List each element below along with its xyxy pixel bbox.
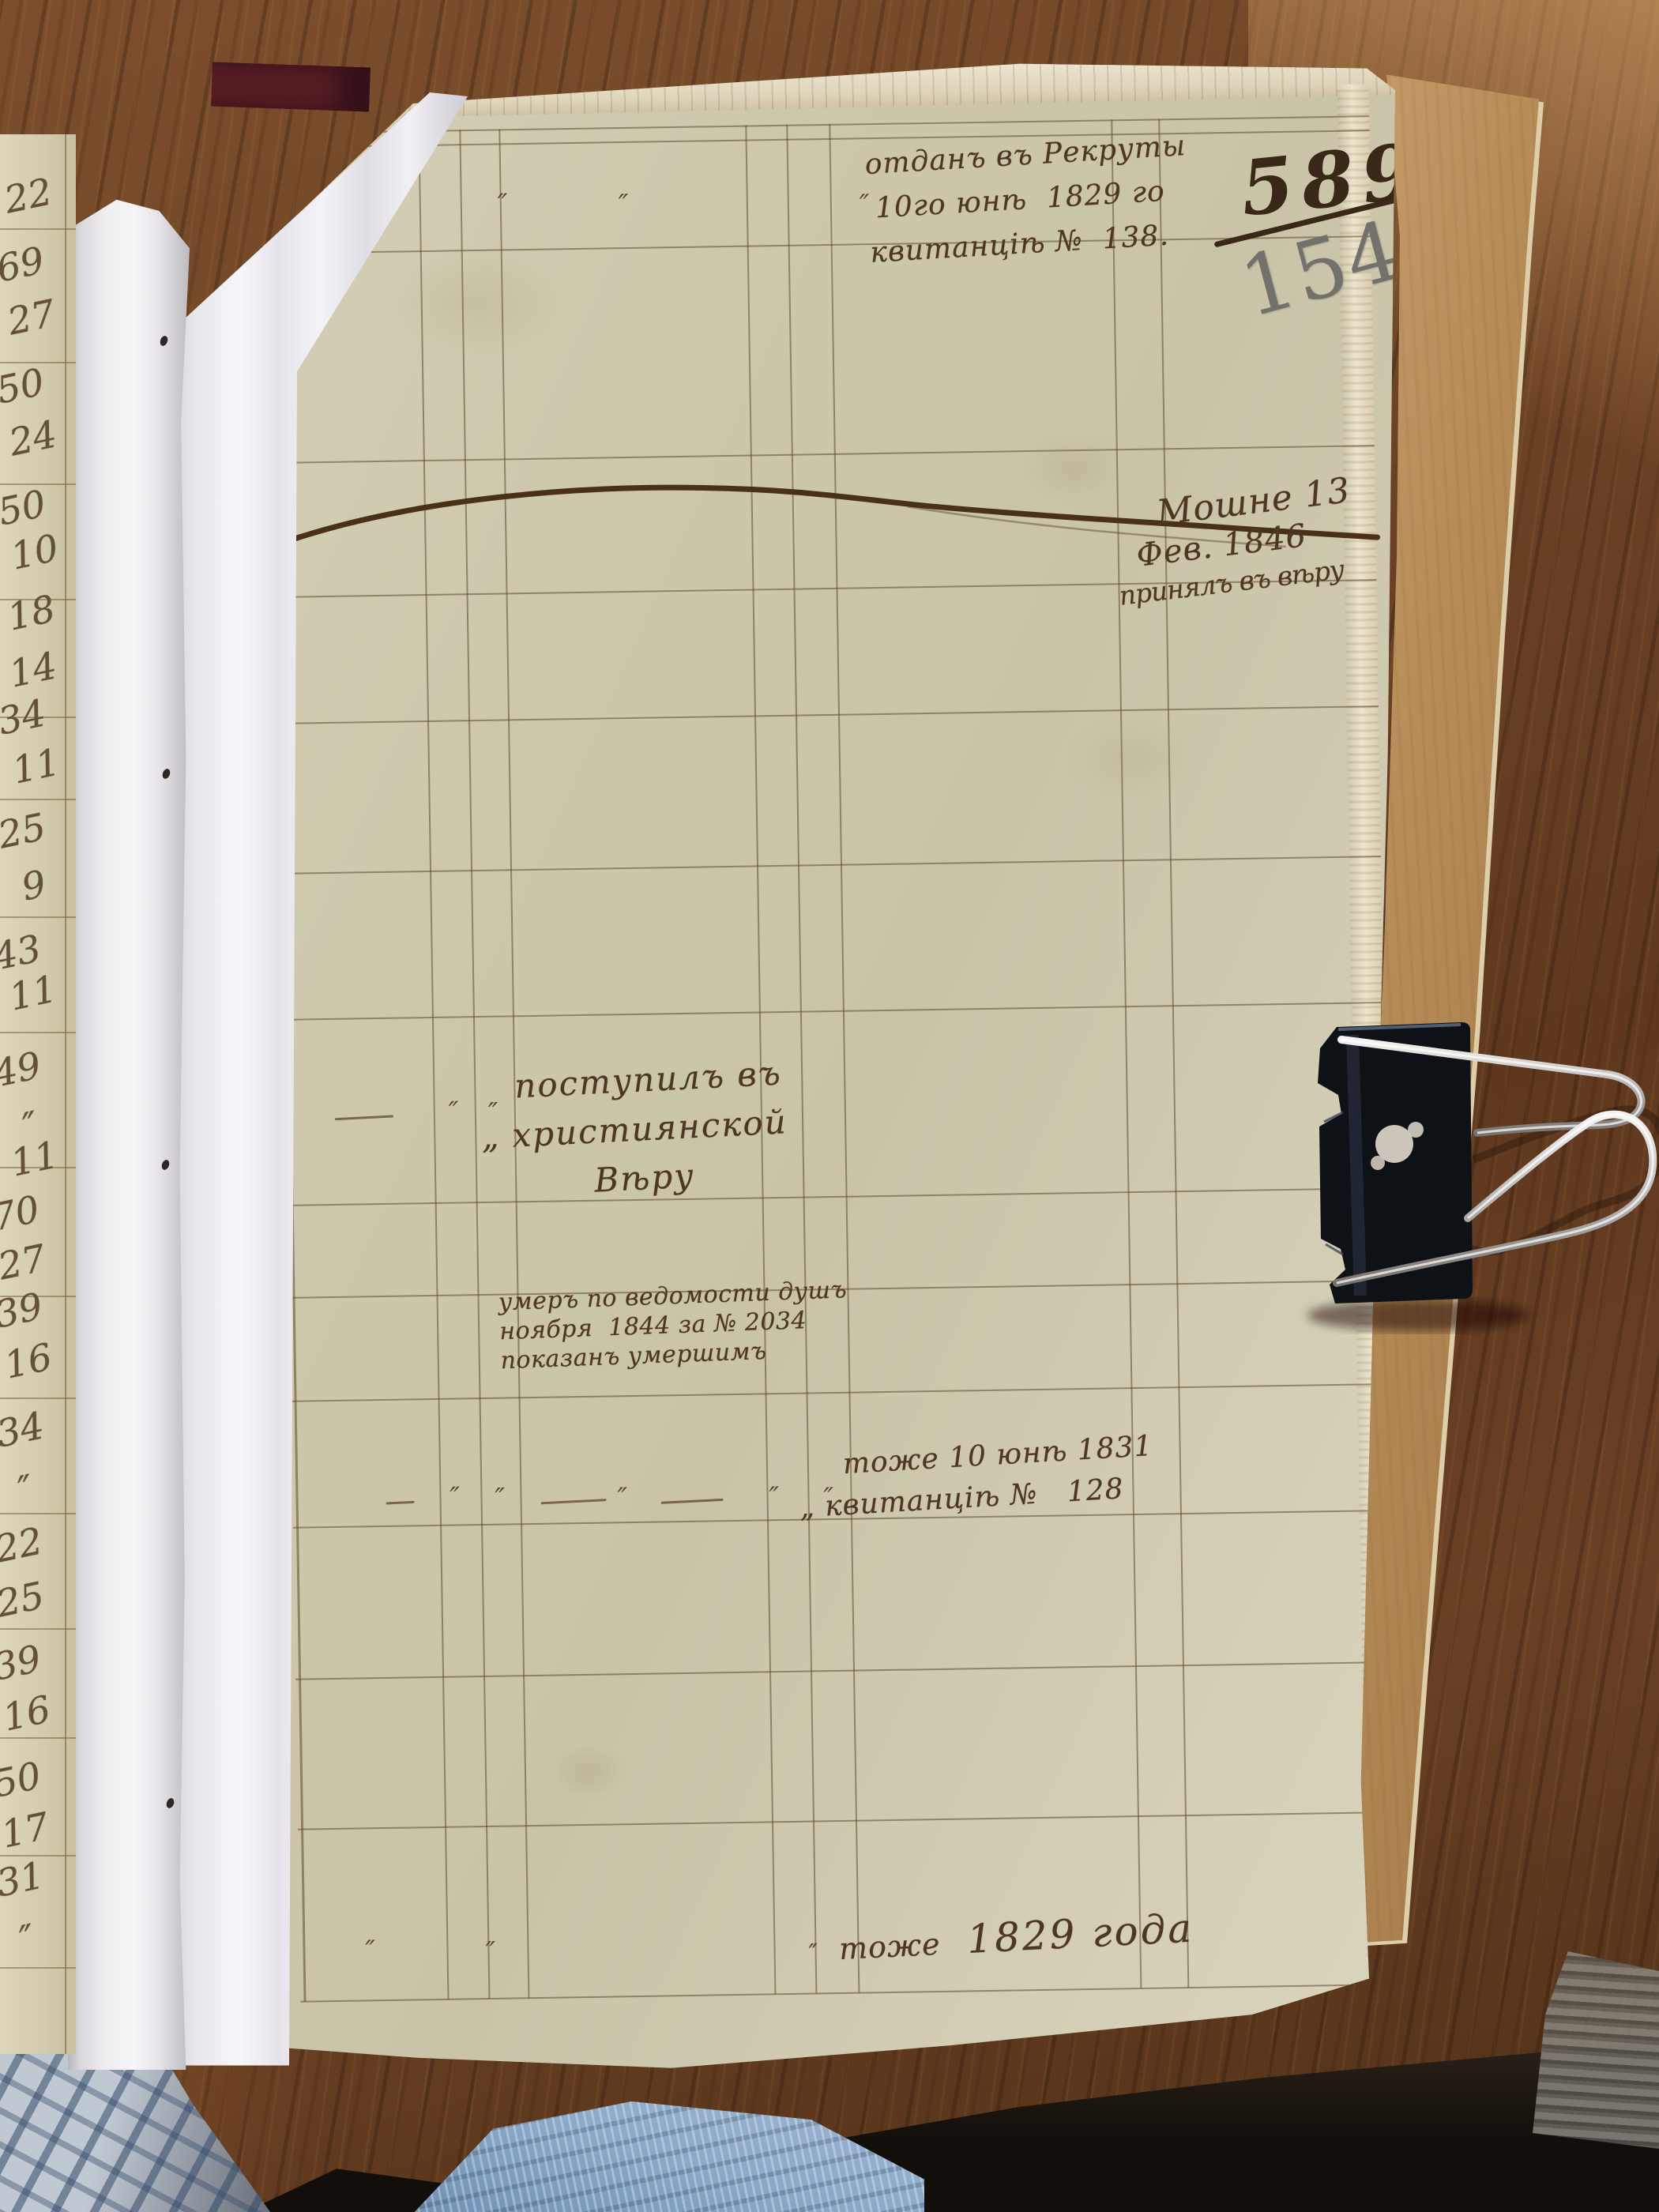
margin-number: ″ — [15, 1470, 36, 1510]
white-page-edges — [68, 196, 190, 2070]
ditto-mark: ″ — [495, 1483, 505, 1514]
margin-number: 31 — [0, 1856, 47, 1902]
book-spine-tab — [211, 62, 371, 112]
margin-number: 25 — [0, 808, 49, 854]
margin-number: 50 — [0, 485, 49, 531]
pen-dash — [541, 1499, 607, 1504]
margin-number: 34 — [0, 694, 49, 740]
margin-number: 18 — [5, 590, 58, 636]
ditto-mark: ″ — [769, 1481, 779, 1513]
pen-dash — [335, 1115, 393, 1120]
margin-number: 24 — [6, 416, 60, 461]
margin-number: 10 — [8, 529, 62, 575]
ditto-mark: ″ — [485, 1936, 495, 1968]
ledger-page: отданъ въ Рекруты 10го юнѣ 1829 го квита… — [134, 52, 1430, 2082]
margin-number: 17 — [0, 1808, 52, 1853]
ditto-mark: ″ — [619, 189, 629, 220]
archival-photo-scene: отданъ въ Рекруты 10го юнѣ 1829 го квита… — [0, 0, 1659, 2212]
margin-number: 9 — [18, 865, 49, 906]
margin-number: 27 — [5, 295, 58, 340]
margin-number: 27 — [0, 1240, 49, 1285]
ditto-mark: ″ — [449, 1096, 459, 1127]
margin-number: 22 — [0, 1522, 46, 1568]
ditto-mark: ″ — [488, 1097, 498, 1129]
ditto-mark: ″ — [860, 189, 870, 220]
margin-number: ″ — [17, 1920, 38, 1959]
margin-number: 16 — [0, 1691, 54, 1736]
ditto-mark: ″ — [497, 188, 507, 220]
margin-number: 22 — [2, 173, 55, 219]
ditto-and-dash-marks: ″″″″″″″″″″″″″ — [134, 52, 1430, 2082]
margin-number: 50 — [0, 1757, 44, 1803]
margin-number: 16 — [2, 1338, 55, 1384]
column-line — [65, 134, 66, 2054]
margin-number: 11 — [6, 970, 60, 1016]
margin-number: 11 — [8, 1136, 62, 1182]
ditto-mark: ″ — [617, 1482, 627, 1514]
margin-number: 25 — [0, 1577, 47, 1623]
margin-number: 43 — [0, 930, 44, 976]
margin-number: 11 — [9, 743, 63, 789]
ditto-mark: ″ — [823, 1482, 833, 1514]
previous-page-numbers-column: 2269275024501018143411259431149″11702739… — [0, 134, 76, 2054]
margin-number: 14 — [6, 647, 60, 693]
margin-number: 39 — [0, 1640, 44, 1686]
margin-number: 49 — [0, 1047, 44, 1093]
ditto-mark: ″ — [450, 1481, 460, 1513]
pen-dash — [661, 1499, 724, 1504]
margin-number: 70 — [0, 1191, 43, 1236]
margin-number: 69 — [0, 242, 47, 288]
ditto-mark: ″ — [365, 1935, 375, 1966]
margin-number: 39 — [0, 1288, 46, 1334]
pen-dash — [386, 1501, 415, 1505]
margin-number: 50 — [0, 363, 47, 409]
margin-number: 34 — [0, 1407, 47, 1453]
